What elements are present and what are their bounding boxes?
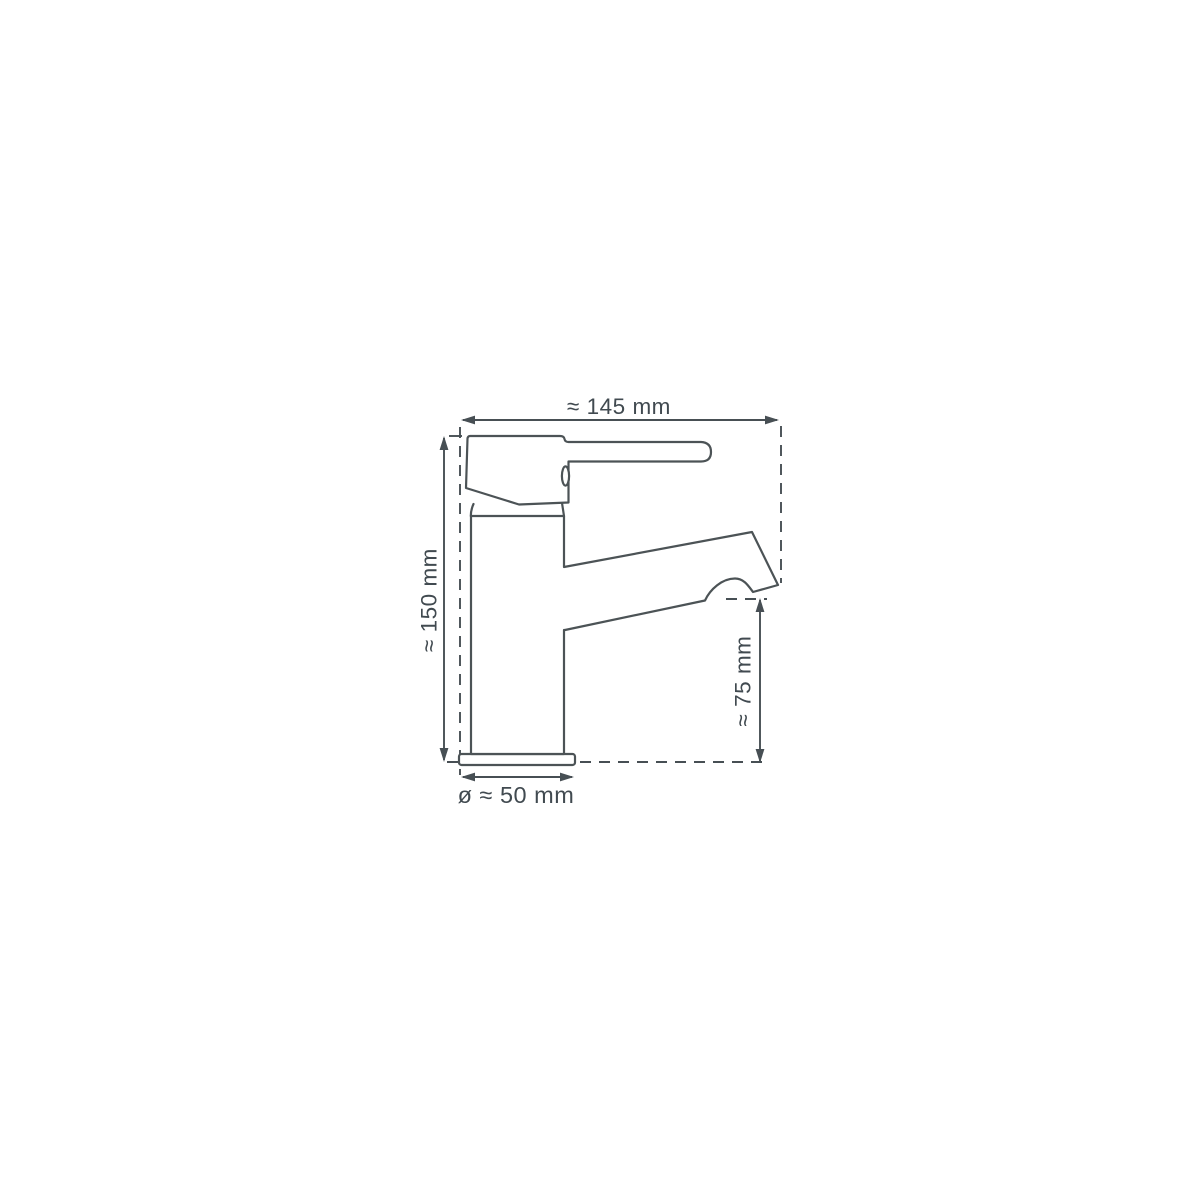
faucet-neck-left-edge (471, 504, 474, 516)
arrowhead-left-icon (461, 773, 475, 782)
faucet-cartridge-detail (562, 466, 569, 485)
dimension-width: ≈ 145 mm (461, 394, 779, 424)
technical-drawing-faucet: ≈ 145 mm ≈ 150 mm ≈ 75 mm ø ≈ 50 mm (0, 0, 1200, 1200)
dimension-spout-height: ≈ 75 mm (731, 598, 765, 763)
dimension-height: ≈ 150 mm (417, 436, 449, 762)
faucet-base-plate (459, 754, 575, 765)
dimension-height-label: ≈ 150 mm (417, 548, 442, 652)
arrowhead-down-icon (756, 749, 765, 763)
faucet-handle-lever (466, 436, 711, 505)
arrowhead-right-icon (560, 773, 574, 782)
dimension-width-label: ≈ 145 mm (567, 394, 671, 419)
arrowhead-up-icon (756, 598, 765, 612)
arrowhead-up-icon (440, 436, 449, 450)
dimension-base-diameter-label: ø ≈ 50 mm (458, 782, 575, 808)
arrowhead-left-icon (461, 416, 475, 425)
dimension-base-diameter: ø ≈ 50 mm (458, 773, 575, 808)
faucet-neck-right-edge (562, 503, 564, 516)
arrowhead-down-icon (440, 748, 449, 762)
arrowhead-right-icon (765, 416, 779, 425)
dimension-spout-height-label: ≈ 75 mm (731, 636, 756, 727)
product-dimension-image: ≈ 145 mm ≈ 150 mm ≈ 75 mm ø ≈ 50 mm (0, 0, 1200, 1200)
